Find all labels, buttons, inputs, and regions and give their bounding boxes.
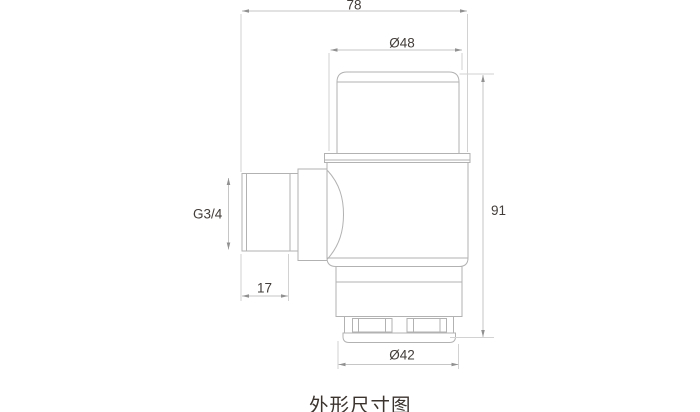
inlet-nut <box>298 169 327 261</box>
valve-flange <box>325 154 471 163</box>
dim-inlet-thread-length-label: 17 <box>257 281 272 296</box>
valve-body <box>327 163 468 267</box>
dim-overall-width: 78 <box>241 0 468 172</box>
dim-overall-width-label: 78 <box>346 0 361 13</box>
body-inlet-fillet <box>328 171 344 260</box>
dim-base-diameter-label: Ø42 <box>389 348 415 363</box>
bottom-cap <box>343 333 456 343</box>
dim-base-diameter: Ø42 <box>338 341 459 369</box>
dim-overall-height: 91 <box>450 74 506 338</box>
valve-outline <box>242 72 470 343</box>
valve-cap <box>337 72 459 154</box>
outlet-cage <box>345 317 454 334</box>
dim-inlet-thread-length: 17 <box>241 254 289 301</box>
dim-cap-diameter: Ø48 <box>329 36 462 152</box>
dim-inlet-thread-size: G3/4 <box>193 178 230 250</box>
valve-dimension-drawing: 78 Ø48 91 G3/4 <box>0 0 700 412</box>
outlet-section <box>336 267 462 317</box>
drawing-caption: 外形尺寸图 <box>309 389 412 412</box>
dim-overall-height-label: 91 <box>491 203 506 218</box>
drawing-svg: 78 Ø48 91 G3/4 <box>0 0 700 412</box>
dim-inlet-thread-size-label: G3/4 <box>193 207 223 222</box>
inlet-thread <box>242 174 298 252</box>
dim-cap-diameter-label: Ø48 <box>389 36 415 51</box>
